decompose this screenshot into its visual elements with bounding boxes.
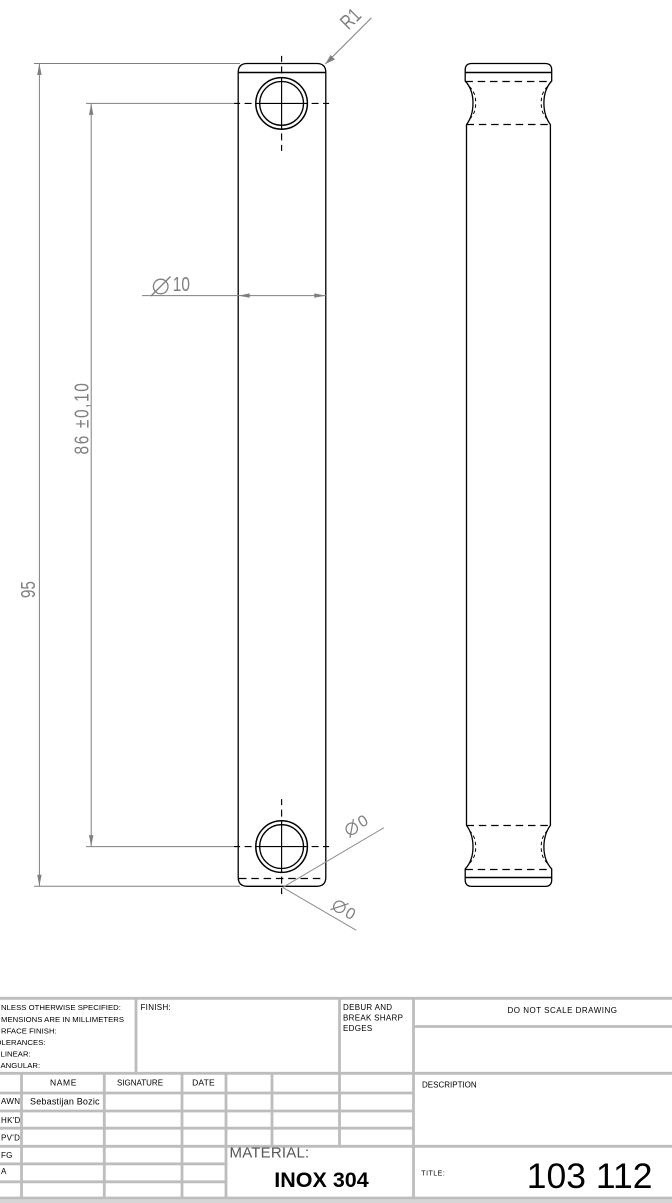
svg-text:HK'D: HK'D	[1, 1116, 21, 1125]
svg-text:NLESS OTHERWISE SPECIFIED:: NLESS OTHERWISE SPECIFIED:	[1, 1003, 121, 1012]
svg-text:DO NOT SCALE DRAWING: DO NOT SCALE DRAWING	[507, 1006, 617, 1015]
svg-text:MATERIAL:: MATERIAL:	[230, 1145, 310, 1162]
svg-text:FINISH:: FINISH:	[141, 1003, 172, 1012]
svg-text:ANGULAR:: ANGULAR:	[1, 1061, 41, 1070]
svg-text:INOX 304: INOX 304	[274, 1168, 368, 1192]
svg-text:86 ±0,10: 86 ±0,10	[70, 382, 93, 455]
svg-text:MENSIONS ARE IN MILLIMETERS: MENSIONS ARE IN MILLIMETERS	[1, 1015, 124, 1024]
svg-text:NAME: NAME	[50, 1078, 77, 1088]
svg-text:TITLE:: TITLE:	[421, 1171, 445, 1178]
svg-text:DATE: DATE	[192, 1078, 215, 1088]
svg-text:A: A	[1, 1167, 7, 1176]
svg-text:RFACE FINISH:: RFACE FINISH:	[1, 1027, 57, 1036]
svg-text:AWN: AWN	[1, 1097, 20, 1106]
svg-text:FG: FG	[1, 1151, 13, 1160]
svg-text:EDGES: EDGES	[343, 1024, 373, 1033]
svg-text:SIGNATURE: SIGNATURE	[117, 1079, 163, 1088]
svg-text:BREAK SHARP: BREAK SHARP	[343, 1014, 403, 1023]
svg-text:DESCRIPTION: DESCRIPTION	[422, 1081, 477, 1090]
svg-text:OLERANCES:: OLERANCES:	[0, 1038, 46, 1047]
svg-text:95: 95	[17, 581, 40, 598]
svg-text:10: 10	[173, 273, 190, 296]
svg-text:Sebastijan Bozic: Sebastijan Bozic	[30, 1097, 100, 1107]
svg-text:103 112: 103 112	[527, 1156, 653, 1196]
svg-text:PV'D: PV'D	[1, 1134, 20, 1143]
svg-text:DEBUR AND: DEBUR AND	[343, 1003, 392, 1012]
svg-text:LINEAR:: LINEAR:	[1, 1050, 31, 1059]
